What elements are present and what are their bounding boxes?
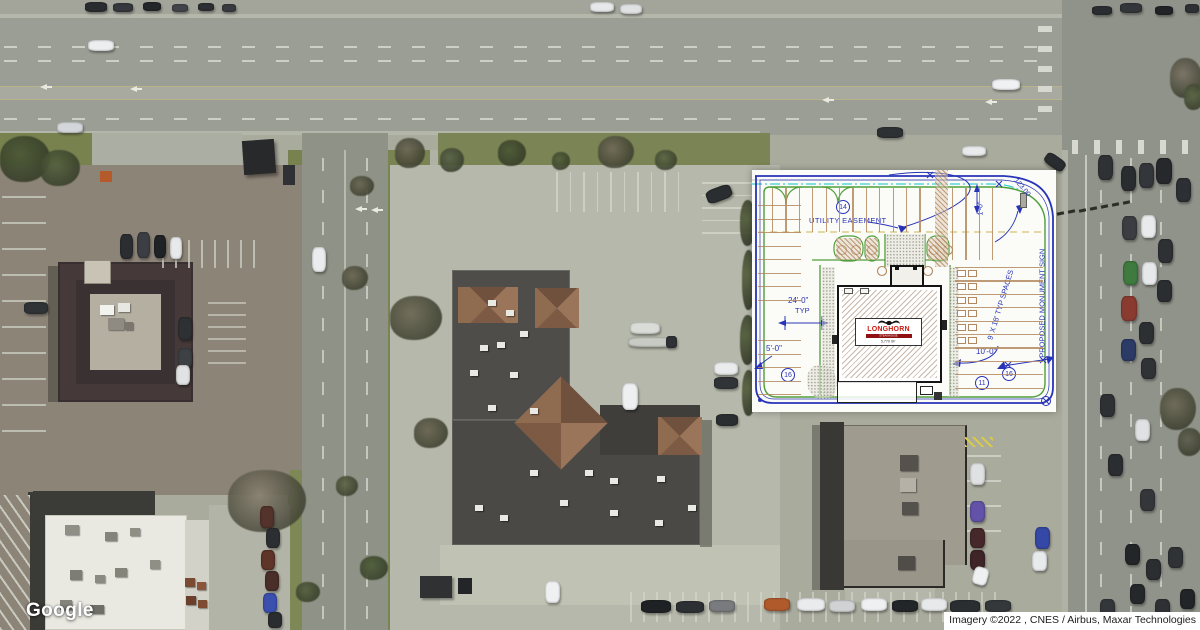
plan-parking-stripe — [919, 188, 920, 232]
car — [1141, 215, 1156, 238]
lane-dash — [174, 46, 187, 48]
parking-stripe — [570, 172, 572, 212]
curbside-stall-marker — [957, 283, 966, 290]
lane-dash — [956, 46, 969, 48]
lane-dash — [1100, 542, 1102, 555]
lane-dash — [718, 46, 731, 48]
plan-parking-stripe — [758, 354, 801, 355]
lane-dash — [1130, 382, 1132, 395]
parking-stripe — [2, 248, 46, 250]
lane-dash — [786, 118, 799, 120]
parking-stripe — [624, 172, 626, 212]
lane-dash — [322, 478, 324, 491]
parking-stripe — [967, 455, 1001, 457]
plan-parking-stripe — [772, 188, 773, 232]
hvac-unit — [506, 310, 514, 316]
parking-stripe — [2, 404, 46, 406]
lane-dash — [1100, 286, 1102, 299]
lane-dash — [208, 118, 221, 120]
lane-dash — [582, 46, 595, 48]
car — [797, 598, 825, 611]
lane-dash — [366, 254, 368, 267]
car — [877, 127, 903, 138]
lane-dash — [276, 60, 289, 62]
lane-dash — [310, 60, 323, 62]
lane-dash — [888, 46, 901, 48]
lane-dash — [1130, 510, 1132, 523]
lane-dash — [1100, 350, 1102, 363]
car — [1108, 454, 1123, 476]
plan-parking-stripe — [979, 188, 980, 260]
curbside-stall-marker — [957, 270, 966, 277]
lane-dash — [820, 46, 833, 48]
hvac-unit — [900, 455, 918, 471]
plan-parking-stripe — [758, 259, 801, 260]
car — [1121, 166, 1136, 191]
lane-dash — [1100, 478, 1102, 491]
lane-dash — [366, 446, 368, 459]
curbside-stall-marker — [957, 297, 966, 304]
plan-parking-stripe — [955, 280, 1043, 281]
lane-dash — [322, 158, 324, 171]
lane-dash — [174, 60, 187, 62]
center-lot-apron — [440, 545, 780, 605]
parking-stripe — [2, 274, 46, 276]
lane-dash — [616, 46, 629, 48]
lane-dash — [242, 60, 255, 62]
plan-parking-stripe — [955, 374, 1043, 375]
parking-stripe — [637, 172, 639, 212]
car — [641, 600, 671, 613]
car — [1157, 280, 1172, 302]
car — [154, 235, 166, 258]
roof-window — [844, 288, 853, 294]
lane-dash — [1024, 60, 1037, 62]
car — [666, 336, 677, 348]
google-logo[interactable]: Google — [26, 600, 94, 622]
lane-dash — [1100, 190, 1102, 203]
hvac-unit — [898, 556, 915, 570]
car — [1035, 527, 1050, 549]
parking-stripe — [208, 314, 246, 316]
plan-parking-stripe — [955, 307, 1043, 308]
car — [921, 598, 947, 611]
plan-parking-stripe — [758, 273, 801, 274]
lane-dash — [378, 60, 391, 62]
parking-stripe — [208, 338, 246, 340]
lane-dash — [310, 46, 323, 48]
lane-dash — [208, 60, 221, 62]
plan-parking-stripe — [906, 188, 907, 232]
lane-dash — [1130, 190, 1132, 203]
lane-dash — [72, 60, 85, 62]
plan-parking-stripe — [965, 188, 966, 260]
lane-dash — [72, 46, 85, 48]
lane-dash — [366, 222, 368, 235]
lane-dash — [752, 118, 765, 120]
hvac-unit — [105, 532, 117, 541]
site-plan-overlay[interactable]: LONGHORN STEAKHOUSE 5,770 SF UTILITY EAS… — [752, 170, 1056, 412]
lane-dash — [1160, 478, 1162, 491]
curbside-stall-marker — [957, 324, 966, 331]
lane-dash — [956, 60, 969, 62]
parking-stripe — [630, 592, 632, 622]
lane-dash — [140, 118, 153, 120]
lane-dash — [4, 60, 17, 62]
plan-parking-stripe — [955, 361, 1043, 362]
car — [260, 506, 274, 528]
side-street-median — [344, 150, 346, 630]
lane-dash — [322, 318, 324, 331]
lane-dash — [366, 478, 368, 491]
parking-stripe — [747, 592, 749, 622]
lane-dash — [412, 118, 425, 120]
car — [143, 2, 161, 11]
lane-dash — [322, 414, 324, 427]
hvac-unit — [150, 560, 160, 569]
east-building-band — [820, 422, 844, 590]
hvac-unit — [198, 600, 207, 608]
plan-parking-stripe — [955, 347, 1043, 348]
parking-stripe — [208, 350, 246, 352]
hvac-unit — [100, 305, 114, 315]
crosswalk-bar — [1182, 140, 1188, 154]
turn-arrow-marking — [828, 99, 834, 101]
plan-parking-stripe — [955, 321, 1043, 322]
plan-parking-stripe — [758, 340, 801, 341]
car — [992, 79, 1020, 90]
hvac-unit — [500, 515, 508, 521]
curbside-stall-marker — [957, 337, 966, 344]
turn-arrow-marking — [361, 208, 367, 210]
hvac-unit — [900, 478, 916, 492]
parking-stripe — [2, 326, 46, 328]
lane-dash — [1160, 542, 1162, 555]
car — [1156, 158, 1172, 184]
patio-outline — [837, 381, 917, 403]
plan-parking-stripe — [955, 294, 1043, 295]
orange-dumpster — [100, 171, 112, 182]
utility-easement-label: UTILITY EASEMENT — [809, 217, 887, 225]
crosswalk-bar — [1116, 140, 1122, 154]
parking-stripe — [678, 172, 680, 212]
hvac-unit — [125, 322, 133, 330]
plan-parking-stripe — [758, 300, 801, 301]
curbside-stall-marker — [968, 297, 977, 304]
lane-dash — [752, 60, 765, 62]
plan-parking-stripe — [866, 188, 867, 232]
lane-dash — [514, 60, 527, 62]
parking-stripe — [2, 196, 46, 198]
lane-dash — [1160, 318, 1162, 331]
lane-dash — [344, 60, 357, 62]
hvac-unit — [185, 578, 195, 587]
lane-dash — [38, 60, 51, 62]
car — [1032, 551, 1047, 571]
imagery-attribution: Imagery ©2022 , CNES / Airbus, Maxar Tec… — [944, 612, 1200, 630]
plan-parking-stripe — [758, 205, 801, 206]
lane-dash — [366, 350, 368, 363]
car — [622, 383, 638, 410]
lane-dash — [616, 118, 629, 120]
lane-dash — [322, 222, 324, 235]
car — [1146, 559, 1161, 580]
car — [962, 146, 986, 156]
hvac-unit — [118, 303, 130, 312]
hvac-unit — [95, 575, 105, 583]
hvac-unit — [657, 476, 665, 482]
lane-dash — [1160, 190, 1162, 203]
right-road-curb — [1062, 150, 1068, 630]
parking-stripe — [556, 172, 558, 212]
car — [1122, 216, 1137, 240]
lane-dash — [786, 60, 799, 62]
car — [266, 528, 280, 548]
hvac-unit — [610, 478, 618, 484]
lane-dash — [242, 118, 255, 120]
car — [1185, 4, 1199, 13]
lane-dash — [106, 118, 119, 120]
equipment-box — [934, 392, 942, 400]
typ-label: TYP — [795, 307, 810, 315]
car — [1130, 584, 1145, 604]
hvac-unit — [186, 596, 196, 605]
lane-dash — [446, 118, 459, 120]
parking-stripe — [240, 240, 242, 268]
plan-parking-stripe — [955, 267, 1043, 268]
tree — [1184, 84, 1200, 110]
car — [1180, 589, 1195, 609]
parking-stripe — [583, 172, 585, 212]
parking-stripe — [2, 222, 46, 224]
plan-parking-stripe — [758, 232, 801, 233]
parking-stripe — [760, 592, 762, 622]
car — [630, 322, 660, 334]
lane-dash — [820, 60, 833, 62]
lane-dash — [1130, 478, 1132, 491]
hvac-unit — [115, 568, 127, 577]
car — [1098, 155, 1113, 180]
lane-dash — [684, 60, 697, 62]
bank-roof-corner — [84, 260, 111, 284]
billboard — [242, 139, 276, 175]
lane-dash — [378, 46, 391, 48]
car — [1168, 547, 1183, 568]
parking-stripe — [208, 326, 246, 328]
car — [1121, 296, 1137, 321]
car — [1139, 163, 1154, 188]
parking-stripe — [214, 240, 216, 268]
parking-stripe — [664, 172, 666, 212]
car — [676, 601, 704, 613]
lane-dash — [322, 350, 324, 363]
lane-dash — [1160, 446, 1162, 459]
parking-stripe — [2, 378, 46, 380]
car — [57, 122, 83, 133]
plan-parking-stripe — [758, 219, 801, 220]
lane-dash — [854, 118, 867, 120]
lane-dash — [366, 542, 368, 555]
lane-dash — [38, 118, 51, 120]
lane-dash — [514, 118, 527, 120]
lane-dash — [1024, 118, 1037, 120]
car — [545, 581, 560, 603]
steer-icon — [874, 319, 904, 325]
curbside-stall-marker — [957, 310, 966, 317]
lane-dash — [1130, 414, 1132, 427]
road-center-lane — [0, 86, 1200, 100]
hvac-unit — [585, 470, 593, 476]
lane-dash — [366, 414, 368, 427]
car — [709, 600, 735, 612]
lane-dash — [174, 118, 187, 120]
crosswalk-bar — [1038, 46, 1052, 52]
car — [263, 593, 277, 613]
car — [1135, 419, 1150, 441]
plan-parking-stripe — [893, 188, 894, 232]
car — [1121, 339, 1136, 361]
hvac-unit — [197, 582, 206, 590]
east-building-roof-low — [844, 540, 945, 588]
parking-stripe — [702, 182, 758, 184]
lane-dash — [684, 118, 697, 120]
car — [120, 234, 133, 259]
car — [176, 365, 190, 385]
dumpster — [420, 576, 452, 598]
car — [137, 232, 150, 258]
lane-dash — [344, 46, 357, 48]
car — [1125, 544, 1140, 565]
hvac-unit — [530, 408, 538, 414]
parking-stripe — [201, 240, 203, 268]
lane-dash — [1024, 46, 1037, 48]
car — [88, 40, 114, 51]
plan-parking-stripe — [812, 188, 813, 232]
car — [265, 571, 279, 591]
lane-dash — [242, 46, 255, 48]
turn-arrow-marking — [136, 88, 142, 90]
hvac-unit — [65, 525, 79, 535]
lane-dash — [140, 46, 153, 48]
plan-parking-stripe — [839, 188, 840, 232]
car — [261, 550, 275, 570]
entry-walk — [886, 234, 925, 267]
dim-24-label: 24'-0" — [788, 297, 808, 305]
lane-dash — [1100, 318, 1102, 331]
lane-dash — [366, 382, 368, 395]
lane-dash — [322, 542, 324, 555]
bldg-bump-east — [942, 320, 947, 330]
car — [1140, 489, 1155, 511]
dim-5-label: 5'-0" — [766, 345, 782, 353]
plan-parking-stripe — [879, 188, 880, 232]
crosswalk-bar — [1038, 106, 1052, 112]
hvac-unit — [108, 318, 124, 330]
lane-dash — [446, 46, 459, 48]
car — [1120, 3, 1142, 13]
building-area-note: 5,770 SF — [881, 340, 896, 344]
lane-dash — [1100, 254, 1102, 267]
lane-dash — [366, 606, 368, 619]
lane-dash — [548, 60, 561, 62]
lane-dash — [366, 286, 368, 299]
plan-parking-stripe — [758, 381, 801, 382]
plan-parking-stripe — [758, 286, 801, 287]
road-edge-line — [0, 14, 1200, 18]
lane-dash — [412, 46, 425, 48]
lane-dash — [366, 318, 368, 331]
plan-parking-stripe — [826, 188, 827, 232]
parking-stripe — [208, 362, 246, 364]
plan-parking-stripe — [758, 246, 801, 247]
lane-dash — [650, 46, 663, 48]
crosswalk-bar — [1038, 66, 1052, 72]
lane-dash — [650, 60, 663, 62]
hvac-unit — [70, 570, 82, 580]
turn-arrow-marking — [46, 86, 52, 88]
hvac-unit — [497, 342, 505, 348]
parking-stripe — [2, 352, 46, 354]
plan-parking-stripe — [955, 388, 1043, 389]
car — [716, 414, 738, 426]
parking-stripe — [253, 240, 255, 268]
lane-dash — [786, 46, 799, 48]
parking-stripe — [2, 430, 46, 432]
plan-parking-stripe — [952, 188, 953, 260]
lane-dash — [208, 46, 221, 48]
hvac-unit — [480, 345, 488, 351]
hip-roof-d — [658, 417, 702, 455]
map-canvas[interactable]: LONGHORN STEAKHOUSE 5,770 SF UTILITY EAS… — [0, 0, 1200, 630]
lane-dash — [990, 118, 1003, 120]
lane-dash — [38, 46, 51, 48]
car — [1092, 6, 1112, 15]
turn-arrow-marking — [377, 209, 383, 211]
car — [1142, 262, 1157, 285]
crosswalk-bar — [1038, 86, 1052, 92]
lane-dash — [1100, 222, 1102, 235]
lane-dash — [922, 46, 935, 48]
curbside-stall-marker — [968, 283, 977, 290]
hvac-unit — [130, 528, 140, 536]
lane-dash — [1160, 350, 1162, 363]
small-sign — [283, 165, 295, 185]
lane-dash — [1160, 382, 1162, 395]
hvac-unit — [510, 372, 518, 378]
hvac-unit — [475, 505, 483, 511]
lane-dash — [72, 118, 85, 120]
plan-parking-stripe — [955, 334, 1043, 335]
lane-dash — [480, 60, 493, 62]
lane-dash — [322, 574, 324, 587]
hvac-unit — [488, 300, 496, 306]
car — [1158, 239, 1173, 263]
lane-dash — [922, 118, 935, 120]
monument-sign-label: PROPOSED MONUMENT SIGN — [1038, 228, 1046, 358]
hvac-unit — [520, 331, 528, 337]
crosswalk-bar — [1072, 140, 1078, 154]
car — [222, 4, 236, 12]
lane-dash — [480, 46, 493, 48]
lane-dash — [684, 46, 697, 48]
lane-dash — [1100, 382, 1102, 395]
plan-parking-stripe — [799, 188, 800, 232]
hvac-unit — [902, 502, 918, 515]
right-road-edge — [1085, 155, 1087, 625]
parking-stripe — [188, 240, 190, 268]
hatched-island — [928, 238, 948, 260]
lane-dash — [322, 510, 324, 523]
